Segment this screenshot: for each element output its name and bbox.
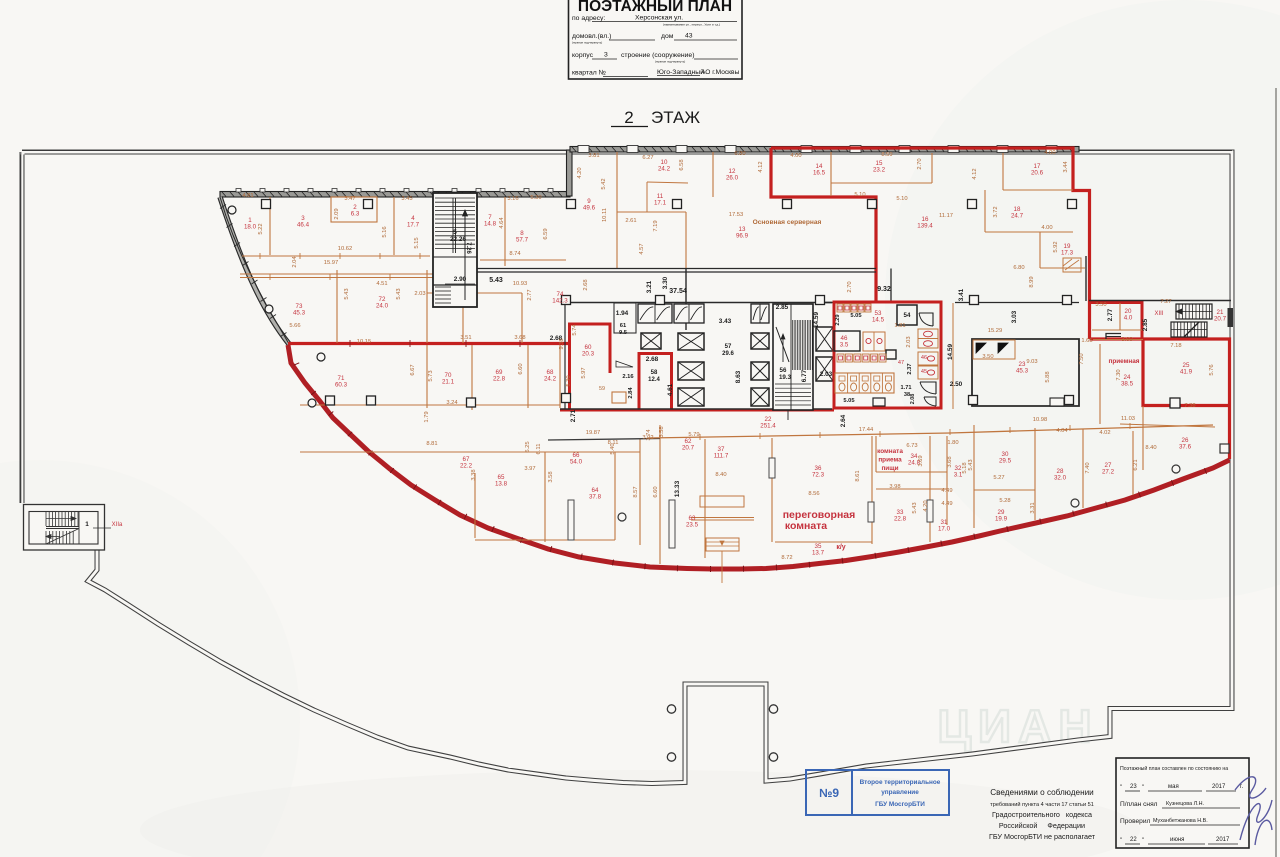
- svg-text:Юго-Западный: Юго-Западный: [657, 68, 704, 76]
- svg-text:2.71: 2.71: [570, 409, 577, 422]
- svg-text:6.67: 6.67: [410, 364, 416, 375]
- svg-text:6.59: 6.59: [543, 228, 549, 239]
- svg-text:Российской Федерации: Российской Федерации: [999, 821, 1085, 830]
- svg-text:5.43: 5.43: [344, 288, 350, 299]
- svg-text:60.3: 60.3: [335, 382, 348, 389]
- svg-text:49.6: 49.6: [583, 205, 596, 212]
- svg-text:2.61: 2.61: [625, 218, 636, 224]
- svg-text:8.61: 8.61: [855, 470, 861, 481]
- svg-text:45.3: 45.3: [1016, 368, 1029, 375]
- svg-text:96.9: 96.9: [736, 233, 749, 240]
- svg-text:Проверил: Проверил: [1120, 818, 1151, 825]
- svg-text:ПОЭТАЖНЫЙ ПЛАН: ПОЭТАЖНЫЙ ПЛАН: [578, 0, 732, 15]
- svg-text:2.29: 2.29: [835, 314, 841, 326]
- svg-text:8.40: 8.40: [715, 472, 726, 478]
- svg-text:7.30: 7.30: [1116, 369, 1122, 380]
- svg-text:5: 5: [453, 229, 457, 236]
- svg-text:32.0: 32.0: [1054, 475, 1067, 482]
- svg-text:5.66: 5.66: [289, 323, 300, 329]
- svg-text:22.26: 22.26: [450, 236, 466, 243]
- svg-text:1.94: 1.94: [616, 310, 629, 317]
- svg-text:7.19: 7.19: [653, 220, 659, 231]
- svg-text:ЭТАЖ: ЭТАЖ: [651, 108, 700, 127]
- svg-text:7.26: 7.26: [465, 242, 471, 254]
- svg-text:4.04: 4.04: [1056, 428, 1068, 434]
- svg-text:4.51: 4.51: [376, 281, 387, 287]
- svg-text:1.71: 1.71: [901, 385, 912, 391]
- svg-text:20.7: 20.7: [1214, 316, 1227, 323]
- svg-text:3.58: 3.58: [548, 471, 554, 482]
- svg-text:4.0: 4.0: [1124, 315, 1133, 322]
- svg-text:17.44: 17.44: [859, 427, 874, 433]
- svg-text:5.88: 5.88: [1045, 371, 1051, 382]
- svg-text:2.16: 2.16: [622, 374, 634, 380]
- svg-text:5.05: 5.05: [843, 398, 855, 404]
- svg-text:5.92: 5.92: [1053, 241, 1059, 252]
- svg-text:11.17: 11.17: [939, 213, 953, 219]
- svg-text:2.64: 2.64: [840, 414, 847, 427]
- svg-text:приема: приема: [878, 457, 902, 464]
- svg-text:3.44: 3.44: [1063, 161, 1069, 173]
- svg-text:квартал №: квартал №: [572, 70, 606, 77]
- svg-text:Второе территориальное: Второе территориальное: [860, 779, 941, 786]
- svg-text:XIIa: XIIa: [112, 522, 123, 528]
- svg-text:17.3: 17.3: [1061, 250, 1074, 257]
- svg-text:6.60: 6.60: [518, 363, 524, 374]
- svg-text:10.62: 10.62: [338, 246, 353, 252]
- svg-text:8.63: 8.63: [735, 370, 742, 383]
- svg-text:3.5: 3.5: [840, 342, 849, 349]
- svg-text:5.79: 5.79: [688, 432, 699, 438]
- svg-text:6.77: 6.77: [801, 369, 808, 382]
- svg-text:8.72: 8.72: [781, 555, 792, 561]
- svg-text:4.02: 4.02: [1099, 430, 1110, 436]
- svg-text:комната: комната: [785, 520, 827, 532]
- svg-text:Сведениями о соблюдении: Сведениями о соблюдении: [990, 788, 1094, 797]
- svg-text:26.0: 26.0: [726, 175, 739, 182]
- svg-text:7.27: 7.27: [1160, 299, 1171, 305]
- svg-text:3.47: 3.47: [344, 196, 355, 202]
- svg-text:16.5: 16.5: [813, 170, 826, 177]
- svg-text:2.77: 2.77: [527, 289, 533, 300]
- svg-text:Херсонская ул.: Херсонская ул.: [635, 15, 683, 22]
- svg-text:5.42: 5.42: [601, 178, 607, 189]
- svg-text:18.0: 18.0: [244, 224, 257, 231]
- svg-text:2017: 2017: [1212, 784, 1226, 790]
- svg-text:2.50: 2.50: [950, 381, 963, 388]
- svg-text:46.4: 46.4: [297, 222, 310, 229]
- svg-text:6.60: 6.60: [653, 486, 659, 497]
- svg-text:37.6: 37.6: [1179, 444, 1192, 451]
- svg-text:3.69: 3.69: [918, 455, 924, 466]
- svg-text:4.00: 4.00: [1041, 225, 1052, 231]
- svg-text:10.11: 10.11: [602, 208, 608, 222]
- svg-text:6.11: 6.11: [536, 444, 542, 455]
- svg-text:2.04: 2.04: [292, 256, 298, 268]
- svg-text:дом: дом: [661, 33, 674, 40]
- svg-text:4.64: 4.64: [499, 217, 505, 229]
- svg-text:Поэтажный план составлен по со: Поэтажный план составлен по состоянию на: [1120, 765, 1228, 772]
- svg-text:4.12: 4.12: [972, 168, 978, 179]
- svg-text:59: 59: [599, 386, 605, 392]
- svg-text:7.40: 7.40: [1085, 462, 1091, 473]
- svg-text:5.74: 5.74: [572, 324, 578, 336]
- svg-text:3.31: 3.31: [1030, 502, 1036, 513]
- svg-text:10.93: 10.93: [513, 281, 528, 287]
- svg-text:2.85: 2.85: [776, 304, 789, 311]
- svg-text:22.8: 22.8: [894, 516, 907, 523]
- svg-text:24.0: 24.0: [376, 303, 389, 310]
- svg-text:5.43: 5.43: [912, 502, 918, 513]
- svg-text:по адресу:: по адресу:: [572, 15, 605, 22]
- svg-text:72.3: 72.3: [812, 472, 825, 479]
- svg-text:5.43: 5.43: [968, 459, 974, 470]
- svg-text:2.84: 2.84: [628, 387, 634, 399]
- svg-text:29.6: 29.6: [722, 351, 734, 357]
- svg-text:6.27: 6.27: [642, 155, 653, 161]
- svg-text:5.30: 5.30: [530, 195, 541, 201]
- svg-text:47: 47: [898, 360, 904, 366]
- svg-text:4.20: 4.20: [923, 500, 929, 511]
- svg-text:9.38: 9.38: [559, 338, 565, 349]
- svg-text:54: 54: [904, 312, 911, 319]
- svg-text:19.9: 19.9: [995, 516, 1008, 523]
- svg-text:22.8: 22.8: [493, 376, 506, 383]
- svg-text:58: 58: [651, 370, 658, 376]
- svg-text:43: 43: [685, 33, 693, 40]
- svg-text:июня: июня: [1170, 837, 1184, 843]
- svg-text:4.20: 4.20: [577, 167, 583, 178]
- svg-text:4.49: 4.49: [941, 488, 952, 494]
- svg-text:5.40: 5.40: [610, 443, 616, 454]
- svg-text:1.80: 1.80: [947, 440, 958, 446]
- svg-text:5.27: 5.27: [993, 475, 1004, 481]
- svg-text:Градостроительного кодекса: Градостроительного кодекса: [992, 810, 1092, 819]
- svg-text:(нужное подчеркнуть): (нужное подчеркнуть): [572, 41, 602, 45]
- svg-text:4.00: 4.00: [790, 153, 801, 159]
- svg-text:требований пункта 4 части 17 с: требований пункта 4 части 17 статьи 51: [990, 801, 1094, 808]
- svg-text:6.73: 6.73: [906, 443, 917, 449]
- svg-text:9.5: 9.5: [619, 330, 628, 336]
- svg-text:2.70: 2.70: [847, 281, 853, 292]
- svg-text:8.40: 8.40: [1145, 445, 1156, 451]
- svg-text:6.58: 6.58: [679, 159, 685, 170]
- svg-text:3.50: 3.50: [1095, 302, 1106, 308]
- svg-text:24.2: 24.2: [544, 376, 557, 383]
- svg-text:8.81: 8.81: [426, 441, 437, 447]
- svg-text:2: 2: [624, 108, 633, 127]
- svg-text:20.7: 20.7: [682, 445, 695, 452]
- svg-text:41.9: 41.9: [1180, 369, 1193, 376]
- svg-text:2.77: 2.77: [1107, 308, 1114, 321]
- svg-text:3.41: 3.41: [958, 288, 965, 301]
- svg-text:4.49: 4.49: [941, 501, 952, 507]
- svg-text:ГБУ МосгорБТИ не располагает: ГБУ МосгорБТИ не располагает: [989, 832, 1096, 841]
- svg-text:2.03: 2.03: [820, 371, 833, 378]
- svg-text:37.8: 37.8: [589, 494, 602, 501]
- svg-text:38.5: 38.5: [1121, 381, 1134, 388]
- svg-text:13.7: 13.7: [812, 550, 825, 557]
- svg-text:3: 3: [604, 52, 608, 59]
- svg-text:ЦИАН: ЦИАН: [937, 700, 1098, 752]
- svg-text:7.50: 7.50: [1079, 353, 1085, 364]
- svg-text:7.18: 7.18: [1170, 343, 1181, 349]
- svg-text:9.03: 9.03: [1026, 359, 1037, 365]
- svg-text:6.25: 6.25: [525, 441, 531, 452]
- svg-text:11.03: 11.03: [1121, 416, 1135, 422]
- svg-text:5.97: 5.97: [581, 367, 587, 378]
- svg-text:3.30: 3.30: [662, 276, 669, 289]
- svg-text:": ": [1142, 838, 1144, 844]
- svg-text:8.99: 8.99: [1029, 276, 1035, 287]
- svg-text:№9: №9: [819, 786, 839, 800]
- svg-text:19.87: 19.87: [586, 430, 601, 436]
- svg-text:П/план снял: П/план снял: [1120, 801, 1158, 808]
- svg-text:3.38: 3.38: [471, 469, 477, 480]
- svg-text:": ": [1120, 785, 1122, 791]
- svg-text:15.29: 15.29: [988, 328, 1003, 334]
- svg-text:1.65: 1.65: [1081, 338, 1092, 344]
- svg-text:пищи: пищи: [881, 465, 898, 472]
- svg-text:5.16: 5.16: [382, 226, 388, 237]
- svg-text:1.79: 1.79: [424, 411, 430, 422]
- svg-text:17.7: 17.7: [407, 222, 420, 229]
- svg-text:19.3: 19.3: [779, 374, 792, 381]
- svg-text:17.0: 17.0: [938, 526, 951, 533]
- svg-text:2.68: 2.68: [583, 279, 589, 290]
- svg-text:3.60: 3.60: [1121, 337, 1132, 343]
- svg-text:5.30: 5.30: [566, 375, 572, 386]
- svg-text:2.68: 2.68: [646, 356, 659, 363]
- svg-text:4.57: 4.57: [639, 243, 645, 254]
- svg-text:4.12: 4.12: [758, 161, 764, 172]
- svg-text:АО г.Москвы: АО г.Москвы: [701, 69, 740, 76]
- svg-text:Муханбетжанова Н.В.: Муханбетжанова Н.В.: [1153, 818, 1208, 824]
- svg-text:приемная: приемная: [1108, 358, 1139, 365]
- svg-text:6.80: 6.80: [1013, 265, 1024, 271]
- svg-text:5.22: 5.22: [258, 223, 264, 234]
- svg-text:4.61: 4.61: [667, 383, 674, 396]
- svg-text:": ": [1142, 785, 1144, 791]
- svg-text:3.43: 3.43: [719, 318, 732, 325]
- svg-text:10.98: 10.98: [1033, 417, 1048, 423]
- svg-text:6.3: 6.3: [351, 211, 360, 218]
- svg-text:корпус: корпус: [572, 52, 594, 59]
- svg-text:2.09: 2.09: [334, 208, 340, 219]
- svg-text:14.59: 14.59: [813, 312, 820, 328]
- svg-text:56: 56: [780, 367, 787, 374]
- svg-text:17.53: 17.53: [729, 212, 744, 218]
- svg-text:3.58: 3.58: [659, 426, 665, 437]
- svg-text:23.2: 23.2: [873, 167, 886, 174]
- svg-text:21.1: 21.1: [442, 379, 455, 386]
- svg-text:9.32: 9.32: [877, 286, 891, 293]
- svg-text:3.45: 3.45: [401, 196, 412, 202]
- svg-text:5.43: 5.43: [489, 277, 503, 284]
- svg-text:(наименование ул., переул., Ус: (наименование ул., переул., Успе и т.д.): [663, 23, 720, 27]
- svg-text:3.50: 3.50: [982, 354, 993, 360]
- svg-text:3.51: 3.51: [460, 335, 471, 341]
- svg-text:5.73: 5.73: [428, 370, 434, 381]
- svg-text:3.97: 3.97: [524, 466, 535, 472]
- svg-text:3.74: 3.74: [646, 429, 652, 441]
- svg-text:5.43: 5.43: [396, 288, 402, 299]
- svg-text:10.15: 10.15: [357, 339, 372, 345]
- svg-text:23: 23: [1130, 784, 1137, 790]
- svg-text:Кузнецова Л.Н.: Кузнецова Л.Н.: [1166, 801, 1204, 807]
- svg-text:3.68: 3.68: [947, 456, 953, 467]
- svg-text:4.81: 4.81: [242, 193, 253, 199]
- svg-text:45: 45: [921, 369, 927, 375]
- svg-text:57.7: 57.7: [516, 237, 529, 244]
- svg-text:2.70: 2.70: [917, 158, 923, 169]
- svg-text:ГБУ МосгорБТИ: ГБУ МосгорБТИ: [875, 801, 925, 808]
- svg-text:2.03: 2.03: [906, 336, 912, 347]
- svg-text:5.28: 5.28: [999, 498, 1010, 504]
- svg-text:3.03: 3.03: [1011, 310, 1018, 323]
- svg-text:управление: управление: [881, 789, 919, 796]
- svg-text:": ": [1120, 838, 1122, 844]
- svg-text:домовл.(вл.): домовл.(вл.): [572, 33, 611, 40]
- svg-text:6.21: 6.21: [1133, 459, 1139, 470]
- svg-text:2.90: 2.90: [454, 276, 467, 283]
- svg-text:5.10: 5.10: [854, 192, 865, 198]
- svg-text:23.5: 23.5: [686, 522, 699, 529]
- svg-text:251.4: 251.4: [760, 423, 776, 430]
- svg-text:17.1: 17.1: [654, 200, 667, 207]
- svg-text:29.5: 29.5: [999, 458, 1012, 465]
- svg-text:(нужное подчеркнуть): (нужное подчеркнуть): [655, 60, 685, 64]
- svg-text:111.7: 111.7: [714, 453, 729, 460]
- svg-text:61: 61: [620, 323, 627, 329]
- svg-text:24.2: 24.2: [658, 166, 671, 173]
- svg-text:2.03: 2.03: [414, 291, 425, 297]
- svg-text:5.15: 5.15: [414, 237, 420, 248]
- svg-text:45.3: 45.3: [293, 310, 306, 317]
- svg-text:5.10: 5.10: [896, 196, 907, 202]
- svg-text:Основная серверная: Основная серверная: [753, 219, 822, 226]
- svg-text:строение (сооружение): строение (сооружение): [621, 52, 694, 59]
- svg-text:12.4: 12.4: [648, 377, 660, 383]
- svg-text:7.38: 7.38: [1184, 403, 1195, 409]
- svg-text:1.81: 1.81: [894, 323, 905, 329]
- svg-text:2.08: 2.08: [910, 394, 916, 405]
- svg-text:139.4: 139.4: [917, 223, 933, 230]
- svg-text:3.24: 3.24: [446, 400, 458, 406]
- svg-text:3.81: 3.81: [588, 153, 599, 159]
- svg-text:13.33: 13.33: [674, 480, 681, 497]
- svg-text:6.80: 6.80: [734, 151, 745, 157]
- svg-text:5.76: 5.76: [1209, 364, 1215, 375]
- svg-text:8.57: 8.57: [633, 486, 639, 497]
- svg-text:20.3: 20.3: [582, 351, 595, 358]
- svg-text:14.5: 14.5: [872, 317, 885, 324]
- svg-text:24.7: 24.7: [1011, 213, 1024, 220]
- svg-text:14.8: 14.8: [484, 221, 497, 228]
- svg-text:3.72: 3.72: [993, 206, 999, 217]
- svg-text:5.05: 5.05: [850, 313, 862, 319]
- svg-text:15.97: 15.97: [324, 260, 339, 266]
- svg-text:22.2: 22.2: [460, 463, 473, 470]
- svg-text:142.3: 142.3: [552, 298, 568, 305]
- svg-text:3.68: 3.68: [514, 335, 525, 341]
- svg-text:8.74: 8.74: [509, 251, 521, 257]
- svg-text:2.85: 2.85: [1142, 318, 1149, 331]
- svg-text:комната: комната: [877, 448, 903, 455]
- svg-text:8.56: 8.56: [808, 491, 819, 497]
- svg-text:20.6: 20.6: [1031, 170, 1044, 177]
- svg-text:к/у: к/у: [836, 544, 845, 551]
- svg-text:37.54: 37.54: [669, 288, 687, 295]
- svg-text:1: 1: [85, 521, 89, 528]
- svg-text:8.59: 8.59: [881, 152, 892, 158]
- svg-text:3.21: 3.21: [646, 280, 653, 293]
- svg-text:4.00: 4.00: [1044, 150, 1055, 156]
- svg-text:3.98: 3.98: [889, 484, 900, 490]
- svg-text:г.: г.: [1240, 784, 1243, 790]
- svg-text:54.0: 54.0: [570, 459, 583, 466]
- svg-text:мая: мая: [1168, 784, 1179, 790]
- svg-text:22: 22: [1130, 837, 1137, 843]
- svg-text:13.8: 13.8: [495, 481, 508, 488]
- svg-text:46: 46: [921, 355, 927, 361]
- svg-text:2017: 2017: [1216, 837, 1230, 843]
- svg-text:57: 57: [725, 344, 732, 350]
- svg-text:27.2: 27.2: [1102, 469, 1115, 476]
- svg-text:14.59: 14.59: [947, 344, 954, 360]
- svg-text:2.37: 2.37: [907, 363, 913, 374]
- svg-text:3.16: 3.16: [507, 196, 518, 202]
- svg-text:XIII: XIII: [1154, 311, 1163, 317]
